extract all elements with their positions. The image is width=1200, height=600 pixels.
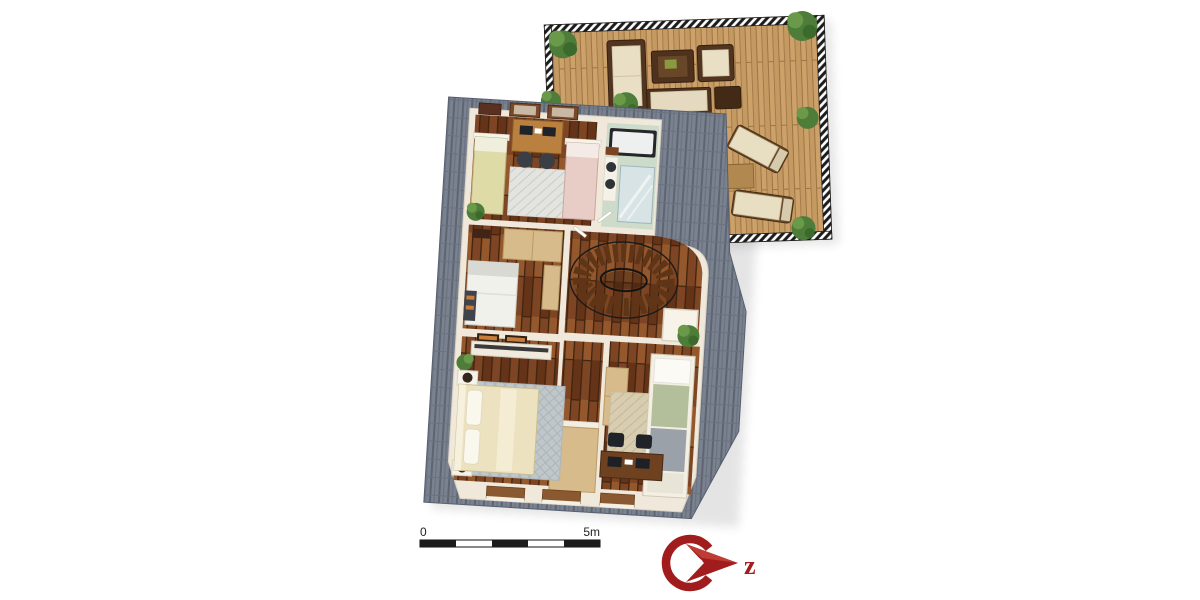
wooden-side-table — [727, 164, 754, 189]
monitor — [607, 456, 622, 467]
monitor — [519, 125, 533, 135]
pillow — [463, 429, 480, 465]
ottoman — [715, 86, 742, 109]
computer-desk — [600, 451, 663, 481]
skylight-frame — [510, 103, 541, 118]
floor-plan-canvas: 0 5m z — [0, 0, 1200, 600]
scale-end-label: 5m — [583, 525, 600, 539]
desk-chair — [608, 432, 625, 447]
computer-desk — [511, 119, 563, 154]
house — [424, 97, 758, 521]
wall-picture — [479, 103, 502, 115]
pillow — [466, 390, 483, 426]
double-bed-cream — [454, 384, 539, 475]
tall-shelf — [542, 265, 561, 310]
skylight-frame — [548, 105, 579, 120]
monitor — [542, 127, 556, 137]
rug — [508, 167, 569, 218]
logo-letter: z — [744, 551, 756, 580]
scale-start-label: 0 — [420, 525, 427, 539]
scale-segment — [420, 540, 456, 547]
single-bed-yellow — [469, 133, 510, 215]
pillow — [654, 358, 691, 384]
scale-bar: 0 5m — [420, 525, 600, 547]
single-bed-pink — [560, 138, 601, 220]
monitor — [635, 458, 650, 469]
double-sink-counter — [603, 157, 619, 202]
coffee-table — [651, 50, 694, 83]
desk-chair — [636, 434, 653, 449]
glass-shower — [617, 166, 654, 224]
scale-segment — [492, 540, 528, 547]
green-blanket — [651, 384, 689, 428]
bathroom-shelf — [605, 147, 618, 156]
wall-picture — [472, 229, 491, 239]
armchair — [697, 44, 734, 81]
floor-plan-page: 0 5m z — [0, 0, 1200, 600]
compass-logo: z — [656, 529, 755, 596]
scale-segment — [564, 540, 600, 547]
